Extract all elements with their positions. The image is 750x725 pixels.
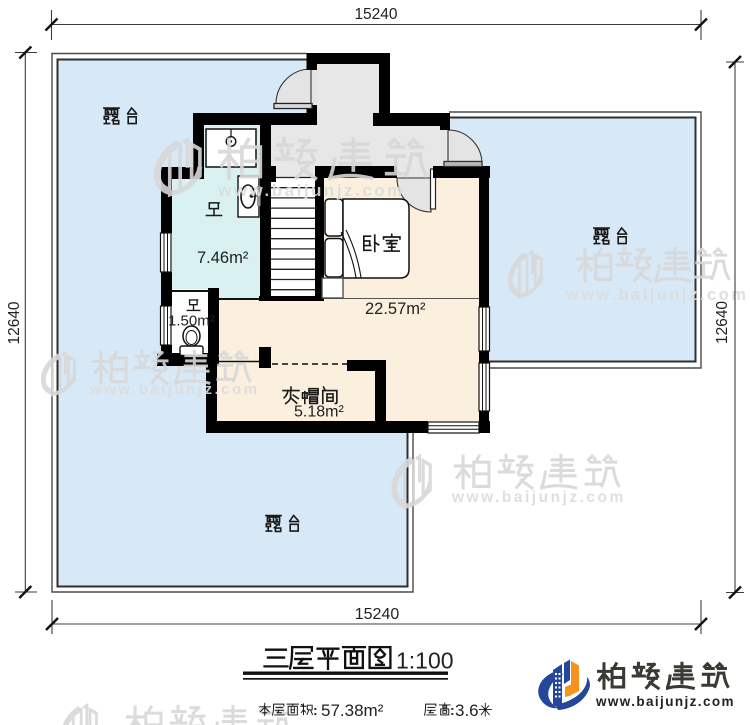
svg-text:www.baijunjz.com: www.baijunjz.com xyxy=(451,489,626,506)
svg-text::: : xyxy=(313,702,318,718)
svg-text:15240: 15240 xyxy=(355,606,400,623)
svg-text:3.6: 3.6 xyxy=(455,701,479,720)
svg-text:12640: 12640 xyxy=(6,301,23,344)
svg-text:57.38m²: 57.38m² xyxy=(321,701,384,720)
svg-text:12640: 12640 xyxy=(714,301,731,344)
svg-text:7.46m²: 7.46m² xyxy=(197,249,249,267)
svg-text:www.baijunjz.com: www.baijunjz.com xyxy=(217,181,405,200)
svg-text:22.57m²: 22.57m² xyxy=(365,300,426,318)
svg-text:1:100: 1:100 xyxy=(396,648,454,674)
svg-text:15240: 15240 xyxy=(354,6,397,23)
svg-text:1.50m²: 1.50m² xyxy=(168,313,215,330)
svg-text:www.baijunjz.com: www.baijunjz.com xyxy=(89,381,259,398)
svg-text:www.baijunjz.com: www.baijunjz.com xyxy=(595,694,735,709)
svg-text::: : xyxy=(450,702,455,718)
svg-text:5.18m²: 5.18m² xyxy=(294,404,344,421)
